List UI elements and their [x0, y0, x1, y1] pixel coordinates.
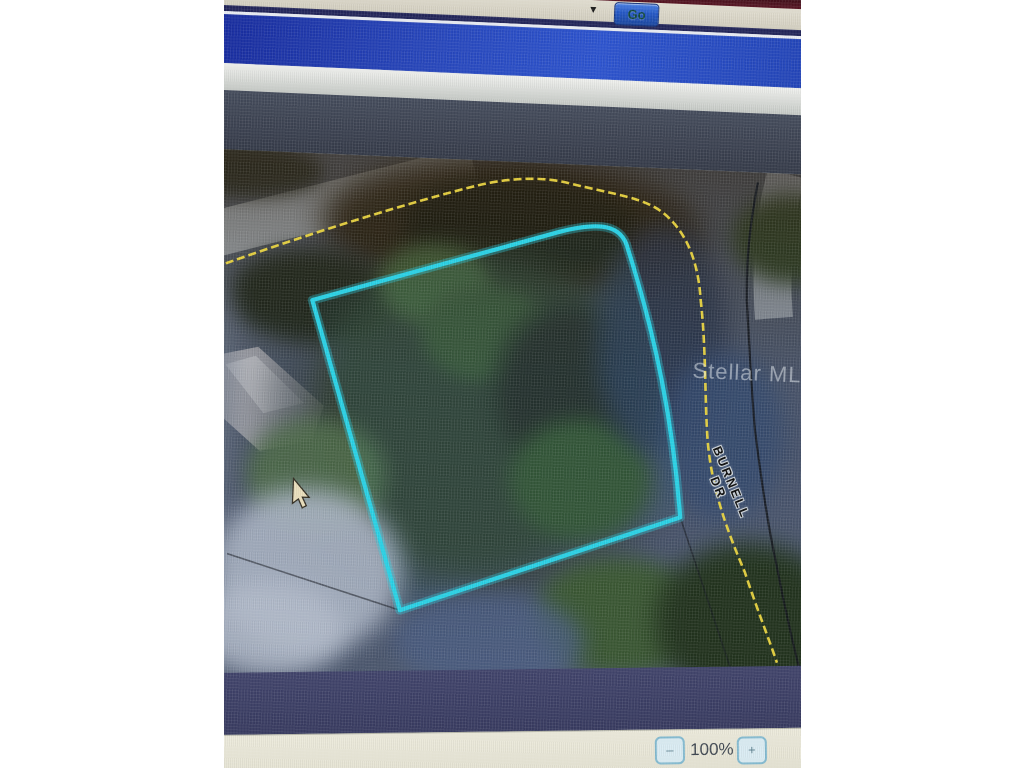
lot-boundary-line	[673, 517, 745, 690]
map-lines-layer	[224, 147, 801, 707]
parcel-outline-glow	[299, 214, 693, 622]
window-bottom-chrome: ‒ 100% +	[224, 665, 801, 768]
address-dropdown-chevron-icon[interactable]: ▾	[585, 2, 602, 17]
road-edge-line	[730, 182, 801, 667]
lot-boundary-line	[225, 554, 402, 611]
zoom-in-button[interactable]: +	[737, 736, 767, 764]
mouse-cursor-icon	[292, 478, 310, 508]
go-button[interactable]: Go	[614, 2, 660, 27]
mls-watermark: Stellar MLS	[692, 358, 801, 389]
browser-window: ▾ Go	[224, 0, 801, 768]
map-canvas[interactable]: Stellar MLS BURNELL DR	[224, 147, 801, 707]
screen-photo: ▾ Go	[224, 0, 801, 768]
bottom-navy-band	[224, 665, 801, 736]
